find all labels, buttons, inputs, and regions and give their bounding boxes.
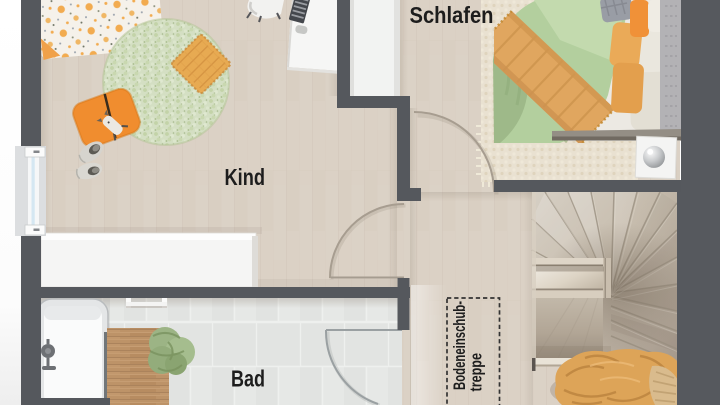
svg-text:Bad: Bad <box>231 366 265 392</box>
svg-text:Bodeneinschub-: Bodeneinschub- <box>451 301 469 390</box>
svg-text:treppe: treppe <box>468 353 486 392</box>
svg-text:Schlafen: Schlafen <box>410 2 494 28</box>
svg-text:Kind: Kind <box>225 164 266 190</box>
